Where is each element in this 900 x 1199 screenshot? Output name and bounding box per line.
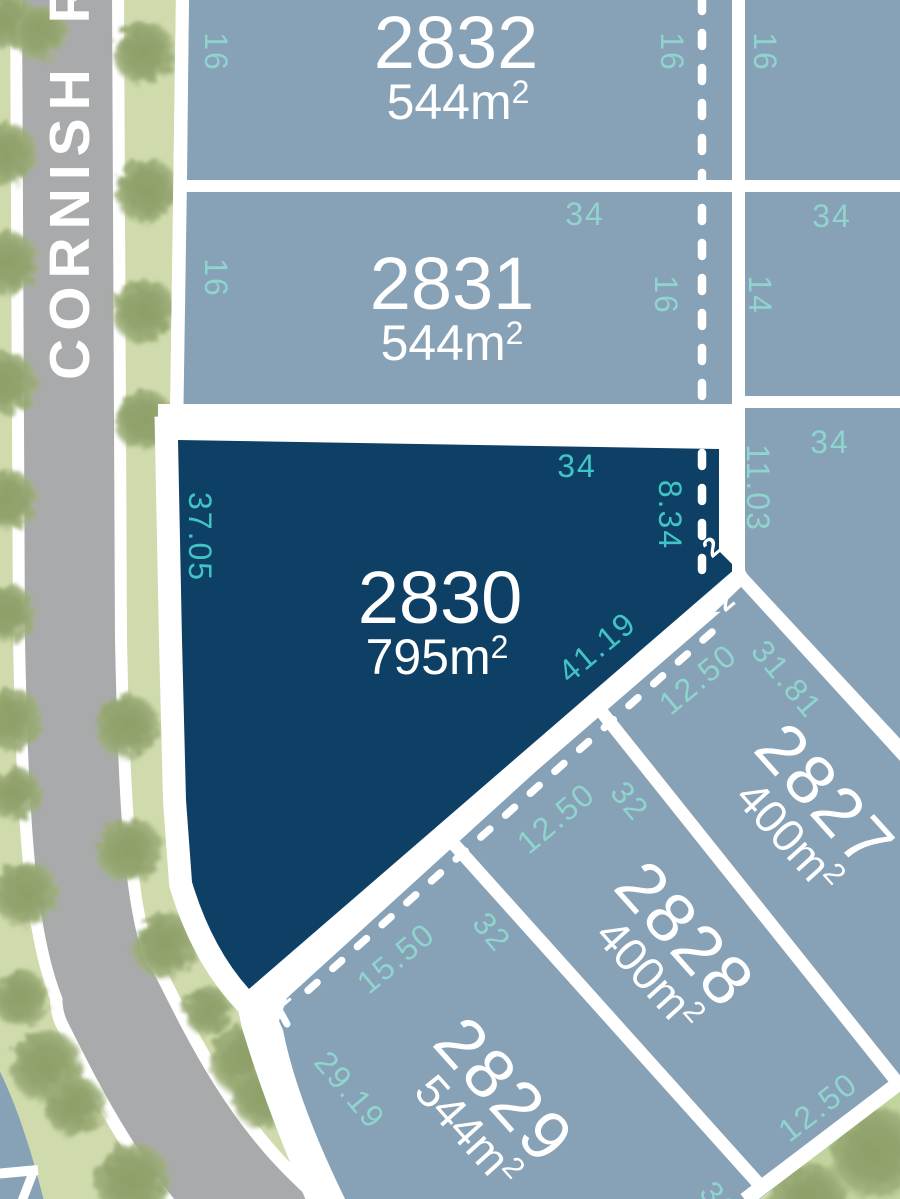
svg-text:544m2: 544m2 (387, 74, 530, 130)
svg-text:CORNISH ROAD: CORNISH ROAD (38, 0, 102, 380)
svg-text:11.03: 11.03 (740, 444, 776, 532)
svg-text:544m2: 544m2 (381, 315, 524, 371)
svg-text:8.34: 8.34 (652, 480, 688, 550)
svg-text:16: 16 (648, 275, 684, 315)
svg-text:2831: 2831 (370, 242, 535, 325)
svg-text:14: 14 (742, 275, 778, 315)
svg-text:34: 34 (565, 196, 605, 232)
svg-text:795m2: 795m2 (366, 629, 509, 685)
svg-text:34: 34 (557, 448, 597, 484)
svg-text:16: 16 (747, 32, 783, 72)
svg-text:37.05: 37.05 (182, 492, 218, 582)
svg-text:34: 34 (812, 198, 852, 234)
svg-text:34: 34 (810, 424, 850, 460)
svg-text:16: 16 (198, 258, 234, 298)
svg-text:16: 16 (198, 32, 234, 72)
svg-text:2832: 2832 (374, 1, 539, 84)
svg-text:16: 16 (654, 32, 690, 72)
svg-text:2830: 2830 (358, 556, 523, 639)
